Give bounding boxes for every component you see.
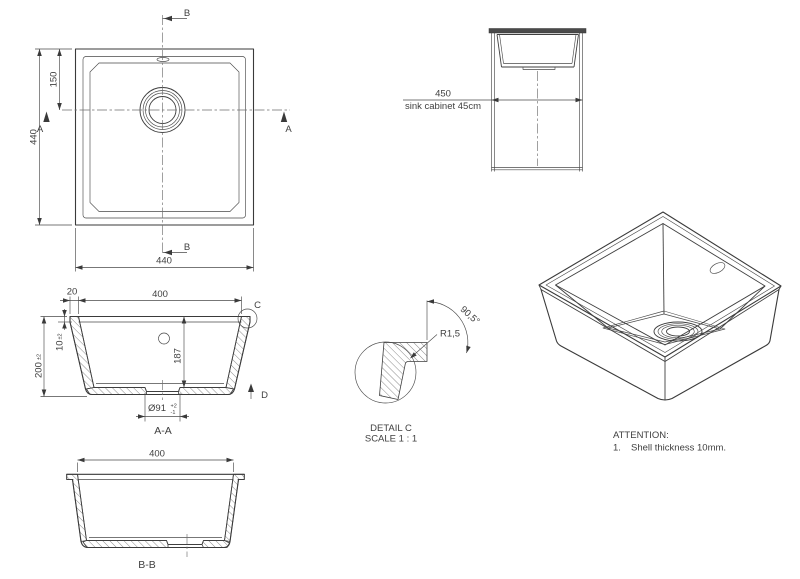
direction-d-arrow: D — [248, 384, 268, 402]
bowl-opening-3d — [556, 224, 766, 346]
radius-dim-text: R1,5 — [440, 329, 460, 340]
sink-drawing-svg: B B A A 440 — [0, 0, 800, 579]
section-a-marker-right: A — [281, 112, 293, 136]
dim-20-text: 20 — [67, 287, 78, 298]
sink-outer-edge — [76, 49, 254, 225]
attention-note: ATTENTION: 1. Shell thickness 10mm. — [613, 430, 726, 454]
dim-10-text: 10 — [55, 340, 66, 351]
detail-c-letter: C — [254, 300, 261, 311]
dim-20-400: 20 400 — [60, 287, 242, 315]
dim-drain-tol-plus: +2 — [171, 404, 177, 410]
dim-200-text: 200 — [34, 362, 45, 378]
detail-c-scale: SCALE 1 : 1 — [365, 434, 417, 445]
sink-rim-edge — [83, 57, 246, 219]
dim-150: 150 — [49, 49, 62, 110]
section-bb-view: 400 B-B — [67, 449, 245, 572]
dim-400-bb-text: 400 — [149, 449, 165, 460]
section-b-marker-top: B — [163, 8, 191, 21]
bowl-opening-chamfer — [90, 63, 239, 212]
isometric-view — [539, 212, 781, 400]
bowl-side-profile — [497, 35, 579, 70]
overflow-hole-section — [159, 333, 170, 344]
overflow-hole-3d — [708, 260, 726, 275]
top-view: B B A A 440 — [29, 8, 293, 272]
dim-150-text: 150 — [49, 72, 60, 88]
section-aa-title: A-A — [154, 425, 172, 437]
dim-400-text: 400 — [152, 289, 168, 300]
dim-450: 450 sink cabinet 45cm — [403, 89, 583, 113]
direction-d-label: D — [261, 390, 268, 401]
dim-10: 10 ±2 — [55, 309, 73, 351]
cabinet-view: 450 sink cabinet 45cm — [403, 29, 586, 172]
attention-item-text: Shell thickness 10mm. — [631, 443, 726, 454]
section-b-label-top: B — [184, 8, 190, 19]
drain-3d — [654, 322, 702, 341]
detail-c-view: 90,5° R1,5 DETAIL C SCALE 1 : 1 — [355, 299, 482, 444]
dim-440-bottom: 440 — [76, 228, 254, 272]
dim-200-tol: ±2 — [37, 354, 43, 360]
detail-c-title: DETAIL C — [370, 423, 412, 434]
section-b-label-bottom: B — [184, 242, 190, 253]
section-aa-view: C D 20 400 200 ±2 — [34, 287, 269, 438]
dim-440-bottom-text: 440 — [156, 256, 172, 267]
dim-187-text: 187 — [173, 348, 184, 364]
section-a-label-right: A — [285, 124, 292, 135]
attention-heading: ATTENTION: — [613, 430, 669, 441]
dim-10-tol: ±2 — [58, 333, 64, 339]
dim-drain: Ø91 +2 -1 — [136, 393, 189, 422]
attention-item-number: 1. — [613, 443, 621, 454]
section-b-marker-bottom: B — [163, 242, 191, 255]
rim-corner-section — [380, 343, 428, 400]
cabinet-label: sink cabinet 45cm — [405, 101, 481, 112]
technical-drawing-canvas: B B A A 440 — [0, 0, 800, 579]
dim-187: 187 — [173, 317, 187, 388]
dim-drain-tol-minus: -1 — [171, 410, 176, 416]
angle-dim-text: 90,5° — [458, 304, 482, 327]
dim-450-text: 450 — [435, 89, 451, 100]
overflow-hole-top — [157, 58, 169, 62]
dim-400-bb: 400 — [78, 449, 234, 473]
dim-drain-text: Ø91 — [148, 403, 166, 414]
section-bb-title: B-B — [138, 559, 156, 571]
dim-440-left-text: 440 — [29, 129, 40, 145]
countertop — [489, 29, 586, 34]
